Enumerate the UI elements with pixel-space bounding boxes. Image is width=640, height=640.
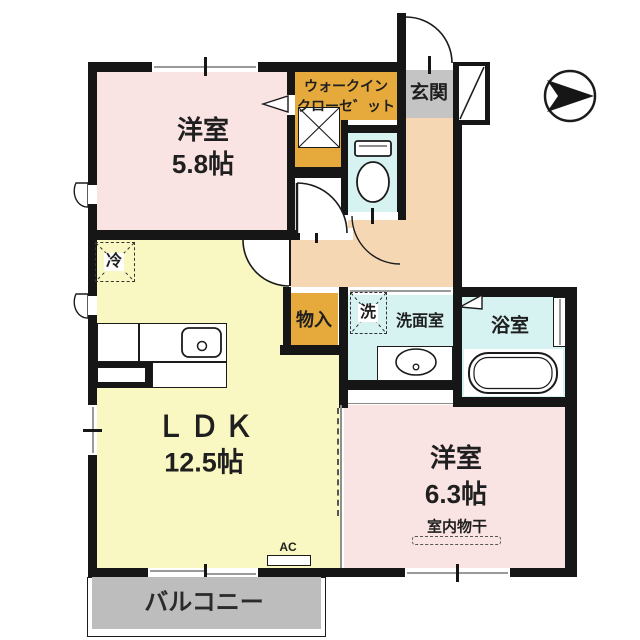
wall-shoebox-block bbox=[453, 62, 490, 125]
fridge-label: 冷 bbox=[104, 253, 124, 271]
kitchen-lower-counter bbox=[152, 362, 227, 388]
washroom-label: 洗面室 bbox=[396, 314, 444, 330]
compass-circle bbox=[545, 71, 595, 121]
wall-left bbox=[88, 62, 97, 568]
ac-unit bbox=[267, 555, 311, 566]
door-room1-opening bbox=[300, 228, 353, 240]
bath-tub-zone bbox=[464, 349, 563, 396]
opening-wic-door bbox=[287, 95, 295, 115]
window-room1-top-tick bbox=[204, 57, 207, 76]
room1-name-label: 洋室 bbox=[177, 117, 229, 143]
room1-size-label: 5.8帖 bbox=[172, 151, 234, 177]
door-toilet-tick bbox=[371, 208, 374, 224]
wall-storage-bottom bbox=[280, 345, 348, 355]
kitchen-counter bbox=[97, 323, 227, 362]
ac-label: AC bbox=[279, 541, 296, 553]
wall-genkan-left bbox=[397, 13, 406, 220]
slider-storage bbox=[291, 287, 338, 293]
partition-ldk-room2 bbox=[340, 405, 342, 568]
wall-hall-right bbox=[453, 125, 462, 297]
wall-wic-bottom bbox=[290, 167, 348, 178]
wic-label-line2: クローセ゛ット bbox=[297, 99, 395, 113]
wall-bath-top bbox=[453, 287, 565, 297]
window-ldk-balcony-line2 bbox=[205, 573, 256, 575]
vanity-counter bbox=[377, 346, 453, 381]
wall-bath-bottom bbox=[453, 397, 565, 407]
bath-label: 浴室 bbox=[491, 317, 529, 336]
window-ldk-balcony-line1 bbox=[150, 570, 205, 572]
ldk-floor bbox=[97, 240, 285, 568]
ldk-floor-right bbox=[285, 355, 340, 568]
indoor-drying-label: 室内物干 bbox=[427, 520, 487, 535]
hallway-floor-lower bbox=[291, 240, 348, 287]
wall-room1-right bbox=[287, 62, 295, 240]
window-bath-line bbox=[559, 299, 561, 345]
hallway-floor-upper bbox=[406, 118, 453, 287]
washer-label: 洗 bbox=[358, 304, 378, 322]
wall-washroom-bottom bbox=[348, 380, 453, 390]
indoor-drying-pole bbox=[412, 536, 501, 545]
washroom-lower-bay bbox=[348, 390, 453, 404]
room2-size-label: 6.3帖 bbox=[425, 481, 487, 507]
compass-arrow-icon bbox=[547, 80, 594, 112]
storage-label: 物入 bbox=[296, 311, 332, 329]
toilet-floor bbox=[348, 133, 398, 212]
wall-right bbox=[565, 287, 577, 577]
wall-room1-bottom bbox=[88, 230, 300, 240]
window-room2-bottom-tick bbox=[456, 564, 459, 582]
room2-name-label: 洋室 bbox=[430, 445, 482, 471]
genkan-label: 玄関 bbox=[410, 84, 448, 103]
wall-bath-left bbox=[453, 297, 462, 397]
floor-plan: 洋室 5.8帖 ウォークイン クローセ゛ット 玄関 ＬＤＫ 12.5帖 洋室 6… bbox=[0, 0, 640, 640]
hallway-floor-toiletfront bbox=[348, 220, 406, 287]
door-room1-tick bbox=[315, 225, 318, 243]
ldk-name-label: ＬＤＫ bbox=[156, 414, 258, 443]
ldk-door-leaf bbox=[286, 240, 291, 286]
partition-ldk-room2-dashes bbox=[337, 408, 339, 516]
wall-toilet-top bbox=[341, 125, 397, 133]
door-entrance-tick bbox=[428, 56, 431, 74]
window-ldk-left-tick bbox=[83, 429, 102, 432]
wic-label-line1: ウォークイン bbox=[304, 79, 388, 93]
balcony-label: バルコニー bbox=[144, 591, 264, 615]
vent-window-1 bbox=[74, 183, 88, 207]
vent-window-2 bbox=[74, 294, 88, 318]
kitchen-end-panel-inner bbox=[98, 368, 145, 382]
kitchen-counter-divider bbox=[138, 324, 140, 361]
ldk-size-label: 12.5帖 bbox=[164, 450, 244, 477]
